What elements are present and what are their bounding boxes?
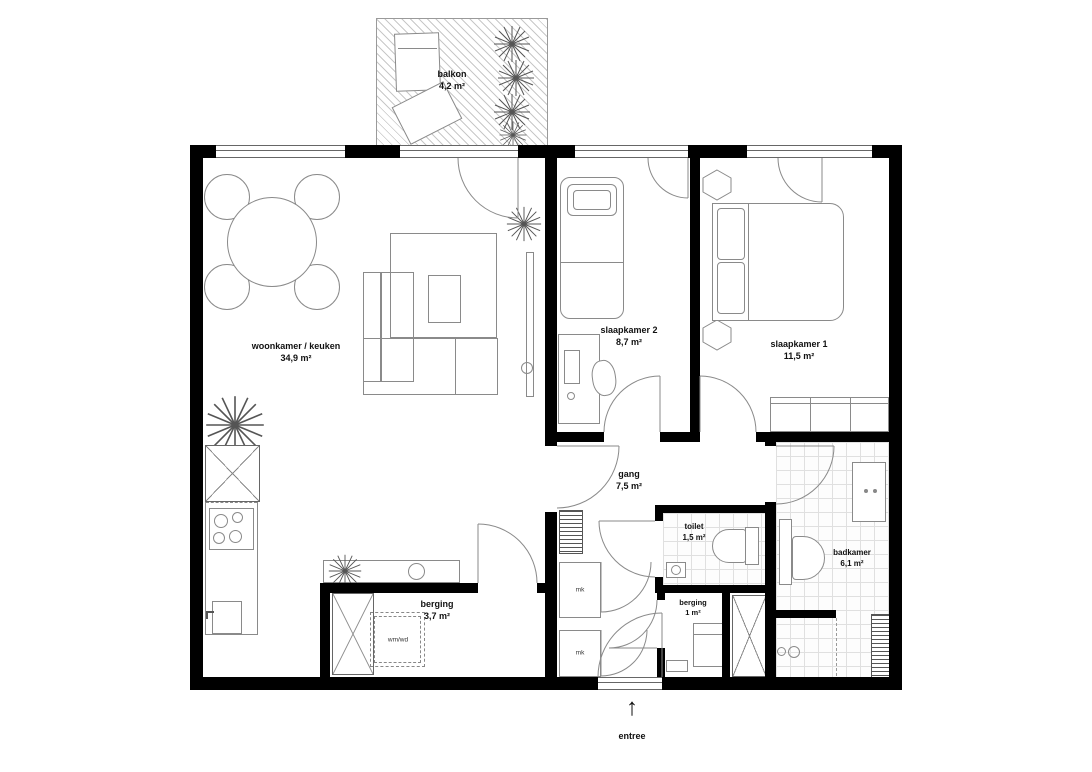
room-name: toilet	[682, 522, 705, 533]
lounge-chair	[394, 32, 441, 92]
side-table-hexagon	[700, 168, 734, 202]
wall-bedrooms-hall	[660, 432, 700, 442]
wall-living-hall	[545, 512, 557, 677]
room-label-toilet: toilet 1,5 m²	[682, 522, 705, 544]
burner	[214, 514, 228, 528]
desk-monitor	[564, 350, 580, 384]
wall-toilet-bottom	[655, 585, 765, 593]
hand-basin-drain	[671, 565, 681, 575]
room-label-gang: gang 7,5 m²	[616, 468, 642, 492]
sofa-corner	[455, 338, 498, 395]
pillow	[717, 208, 745, 260]
room-name: slaapkamer 1	[770, 338, 827, 350]
shaft-radiator	[559, 510, 583, 554]
room-area: 7,5 m²	[616, 480, 642, 492]
counter-divider	[206, 502, 257, 503]
room-area: 3,7 m²	[421, 610, 454, 622]
basin-tap-dot	[873, 489, 877, 493]
wall-storage-left-stub	[657, 593, 665, 600]
room-area: 8,7 m²	[600, 336, 657, 348]
burner	[213, 532, 225, 544]
room-area: 1,5 m²	[682, 533, 705, 544]
room-name: balkon	[437, 68, 466, 80]
wall-storage-right	[722, 593, 730, 677]
dining-table	[227, 197, 317, 287]
closet-door-swing	[601, 630, 647, 676]
shower-drain	[788, 646, 800, 658]
kitchen-sink	[408, 563, 425, 580]
shower-screen-line	[836, 618, 837, 676]
wardrobe-divider	[810, 398, 811, 431]
outer-wall-left	[190, 145, 203, 690]
wall-hall-bathroom	[765, 432, 776, 446]
wall-berging-top	[320, 583, 478, 593]
window-bedroom1	[747, 145, 872, 158]
basin-tap-dot	[864, 489, 868, 493]
room-area: 4,2 m²	[437, 80, 466, 92]
floor-plan: wm/wd mk mk	[0, 0, 1092, 772]
wall-hall-bathroom	[765, 502, 776, 677]
room-name: berging	[421, 598, 454, 610]
door-swing-living-hall	[557, 446, 619, 508]
pillow-inner	[573, 190, 611, 210]
room-label-slaapkamer1: slaapkamer 1 11,5 m²	[770, 338, 827, 362]
hall-cabinet	[732, 595, 767, 677]
outer-wall-bottom	[190, 677, 902, 690]
window-bedroom2	[575, 145, 688, 158]
storage-cabinet	[332, 593, 374, 675]
bathroom-shelf	[779, 519, 792, 585]
radiator	[526, 252, 534, 397]
entrance-label: entree	[618, 730, 645, 742]
wall-living-bedroom2	[545, 158, 557, 432]
washbasin-unit	[852, 462, 886, 522]
wall-toilet-left	[655, 577, 663, 585]
utility-unit-line	[694, 634, 722, 635]
window-living	[216, 145, 345, 158]
shelf-items	[666, 660, 688, 672]
room-name: badkamer	[833, 548, 871, 559]
outer-wall-right	[889, 145, 902, 690]
meter-closet-label: mk	[576, 650, 585, 657]
door-swing-balcony	[458, 158, 518, 218]
coffee-table	[428, 275, 461, 323]
door-swing-berging	[478, 524, 537, 583]
toilet-cistern	[745, 527, 759, 565]
wall-toilet-left	[655, 505, 663, 521]
meter-closet-label: mk	[576, 587, 585, 594]
pillow	[717, 262, 745, 314]
window-vent-swing	[648, 158, 688, 198]
oven	[212, 601, 242, 634]
wall-berging-top-stub	[537, 583, 545, 593]
wall-bedroom2-bedroom1	[690, 158, 700, 432]
room-area: 34,9 m²	[252, 352, 341, 364]
room-area: 6,1 m²	[833, 559, 871, 570]
blanket-fold-line	[748, 204, 749, 320]
door-swing-bedroom1	[700, 376, 756, 432]
shower-head	[777, 647, 786, 656]
wall-berging-left	[320, 583, 330, 677]
room-name: slaapkamer 2	[600, 324, 657, 336]
room-name: berging	[679, 598, 707, 608]
shower-partition-wall	[776, 610, 836, 618]
wall-living-hall	[545, 432, 557, 446]
desk-item	[567, 392, 575, 400]
door-swing-bathroom	[776, 446, 834, 504]
room-name: gang	[616, 468, 642, 480]
blanket-fold-line	[561, 262, 623, 263]
room-label-woonkamer: woonkamer / keuken 34,9 m²	[252, 340, 341, 364]
kitchen-tall-cabinet	[205, 445, 260, 502]
lounge-chair-backrest-line	[398, 48, 437, 49]
room-area: 1 m²	[679, 608, 707, 618]
wardrobe-divider	[850, 398, 851, 431]
room-name: woonkamer / keuken	[252, 340, 341, 352]
room-area: 11,5 m²	[770, 350, 827, 362]
towel-radiator	[871, 614, 890, 678]
closet-door-swing	[601, 562, 651, 612]
washer-dryer-label: wm/wd	[388, 637, 408, 644]
window-balcony-door	[400, 145, 518, 158]
room-label-berging: berging 3,7 m²	[421, 598, 454, 622]
burner	[229, 530, 242, 543]
faucet-icon	[206, 611, 208, 619]
thermostat	[521, 362, 533, 374]
room-label-slaapkamer2: slaapkamer 2 8,7 m²	[600, 324, 657, 348]
room-label-balkon: balkon 4,2 m²	[437, 68, 466, 92]
window-vent-swing	[778, 158, 822, 202]
room-label-badkamer: badkamer 6,1 m²	[833, 548, 871, 570]
toilet-bowl	[712, 529, 746, 563]
wardrobe-shelf-line	[771, 403, 888, 404]
wall-toilet-top	[655, 505, 765, 513]
burner	[232, 512, 243, 523]
entrance-arrow-icon: ↑	[626, 696, 638, 720]
entrance-threshold	[598, 677, 662, 690]
room-label-berging-klein: berging 1 m²	[679, 598, 707, 618]
side-table-hexagon	[700, 318, 734, 352]
utility-unit	[693, 623, 723, 667]
door-swing-bedroom2	[604, 376, 660, 432]
